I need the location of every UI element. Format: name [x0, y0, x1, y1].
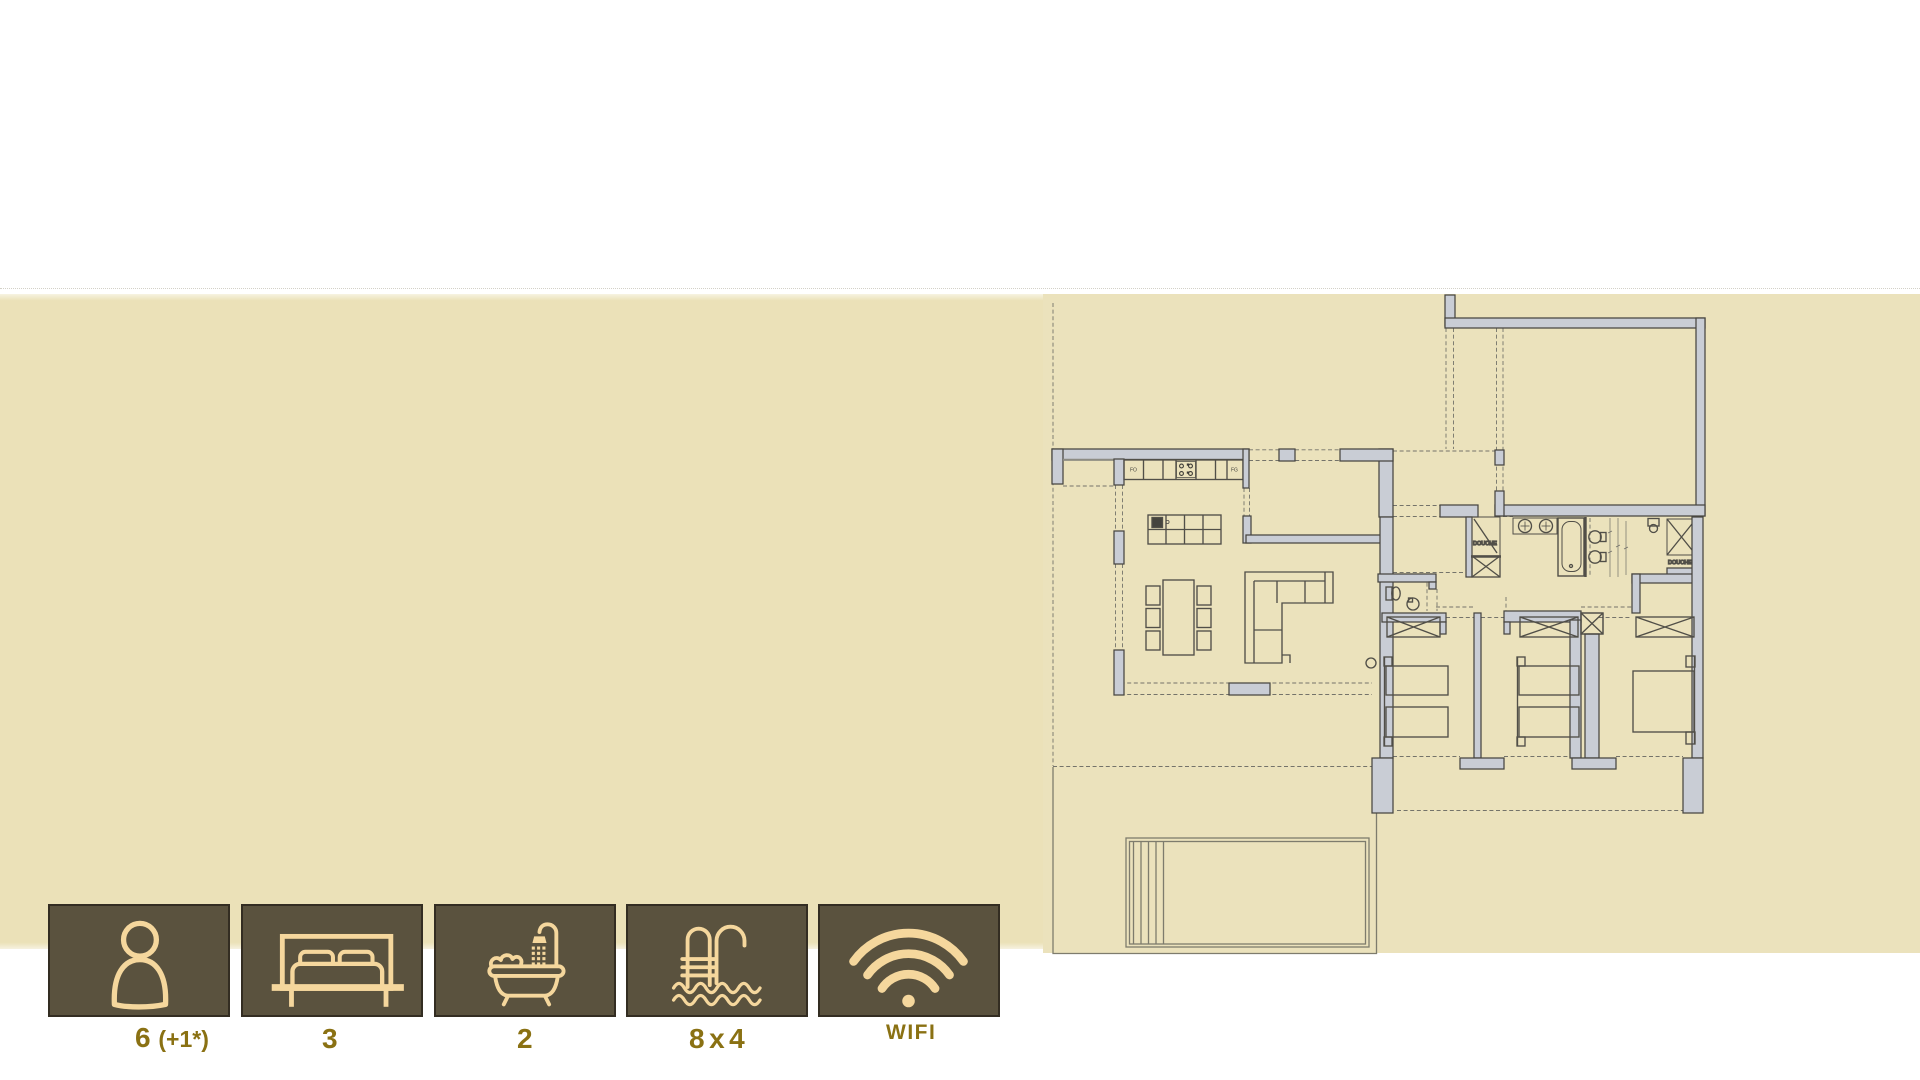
svg-text:FO: FO — [1130, 468, 1137, 474]
svg-text:FG: FG — [1231, 468, 1238, 474]
svg-text:DOUCHE: DOUCHE — [1473, 541, 1497, 547]
svg-text:DOUCHE: DOUCHE — [1668, 560, 1692, 566]
